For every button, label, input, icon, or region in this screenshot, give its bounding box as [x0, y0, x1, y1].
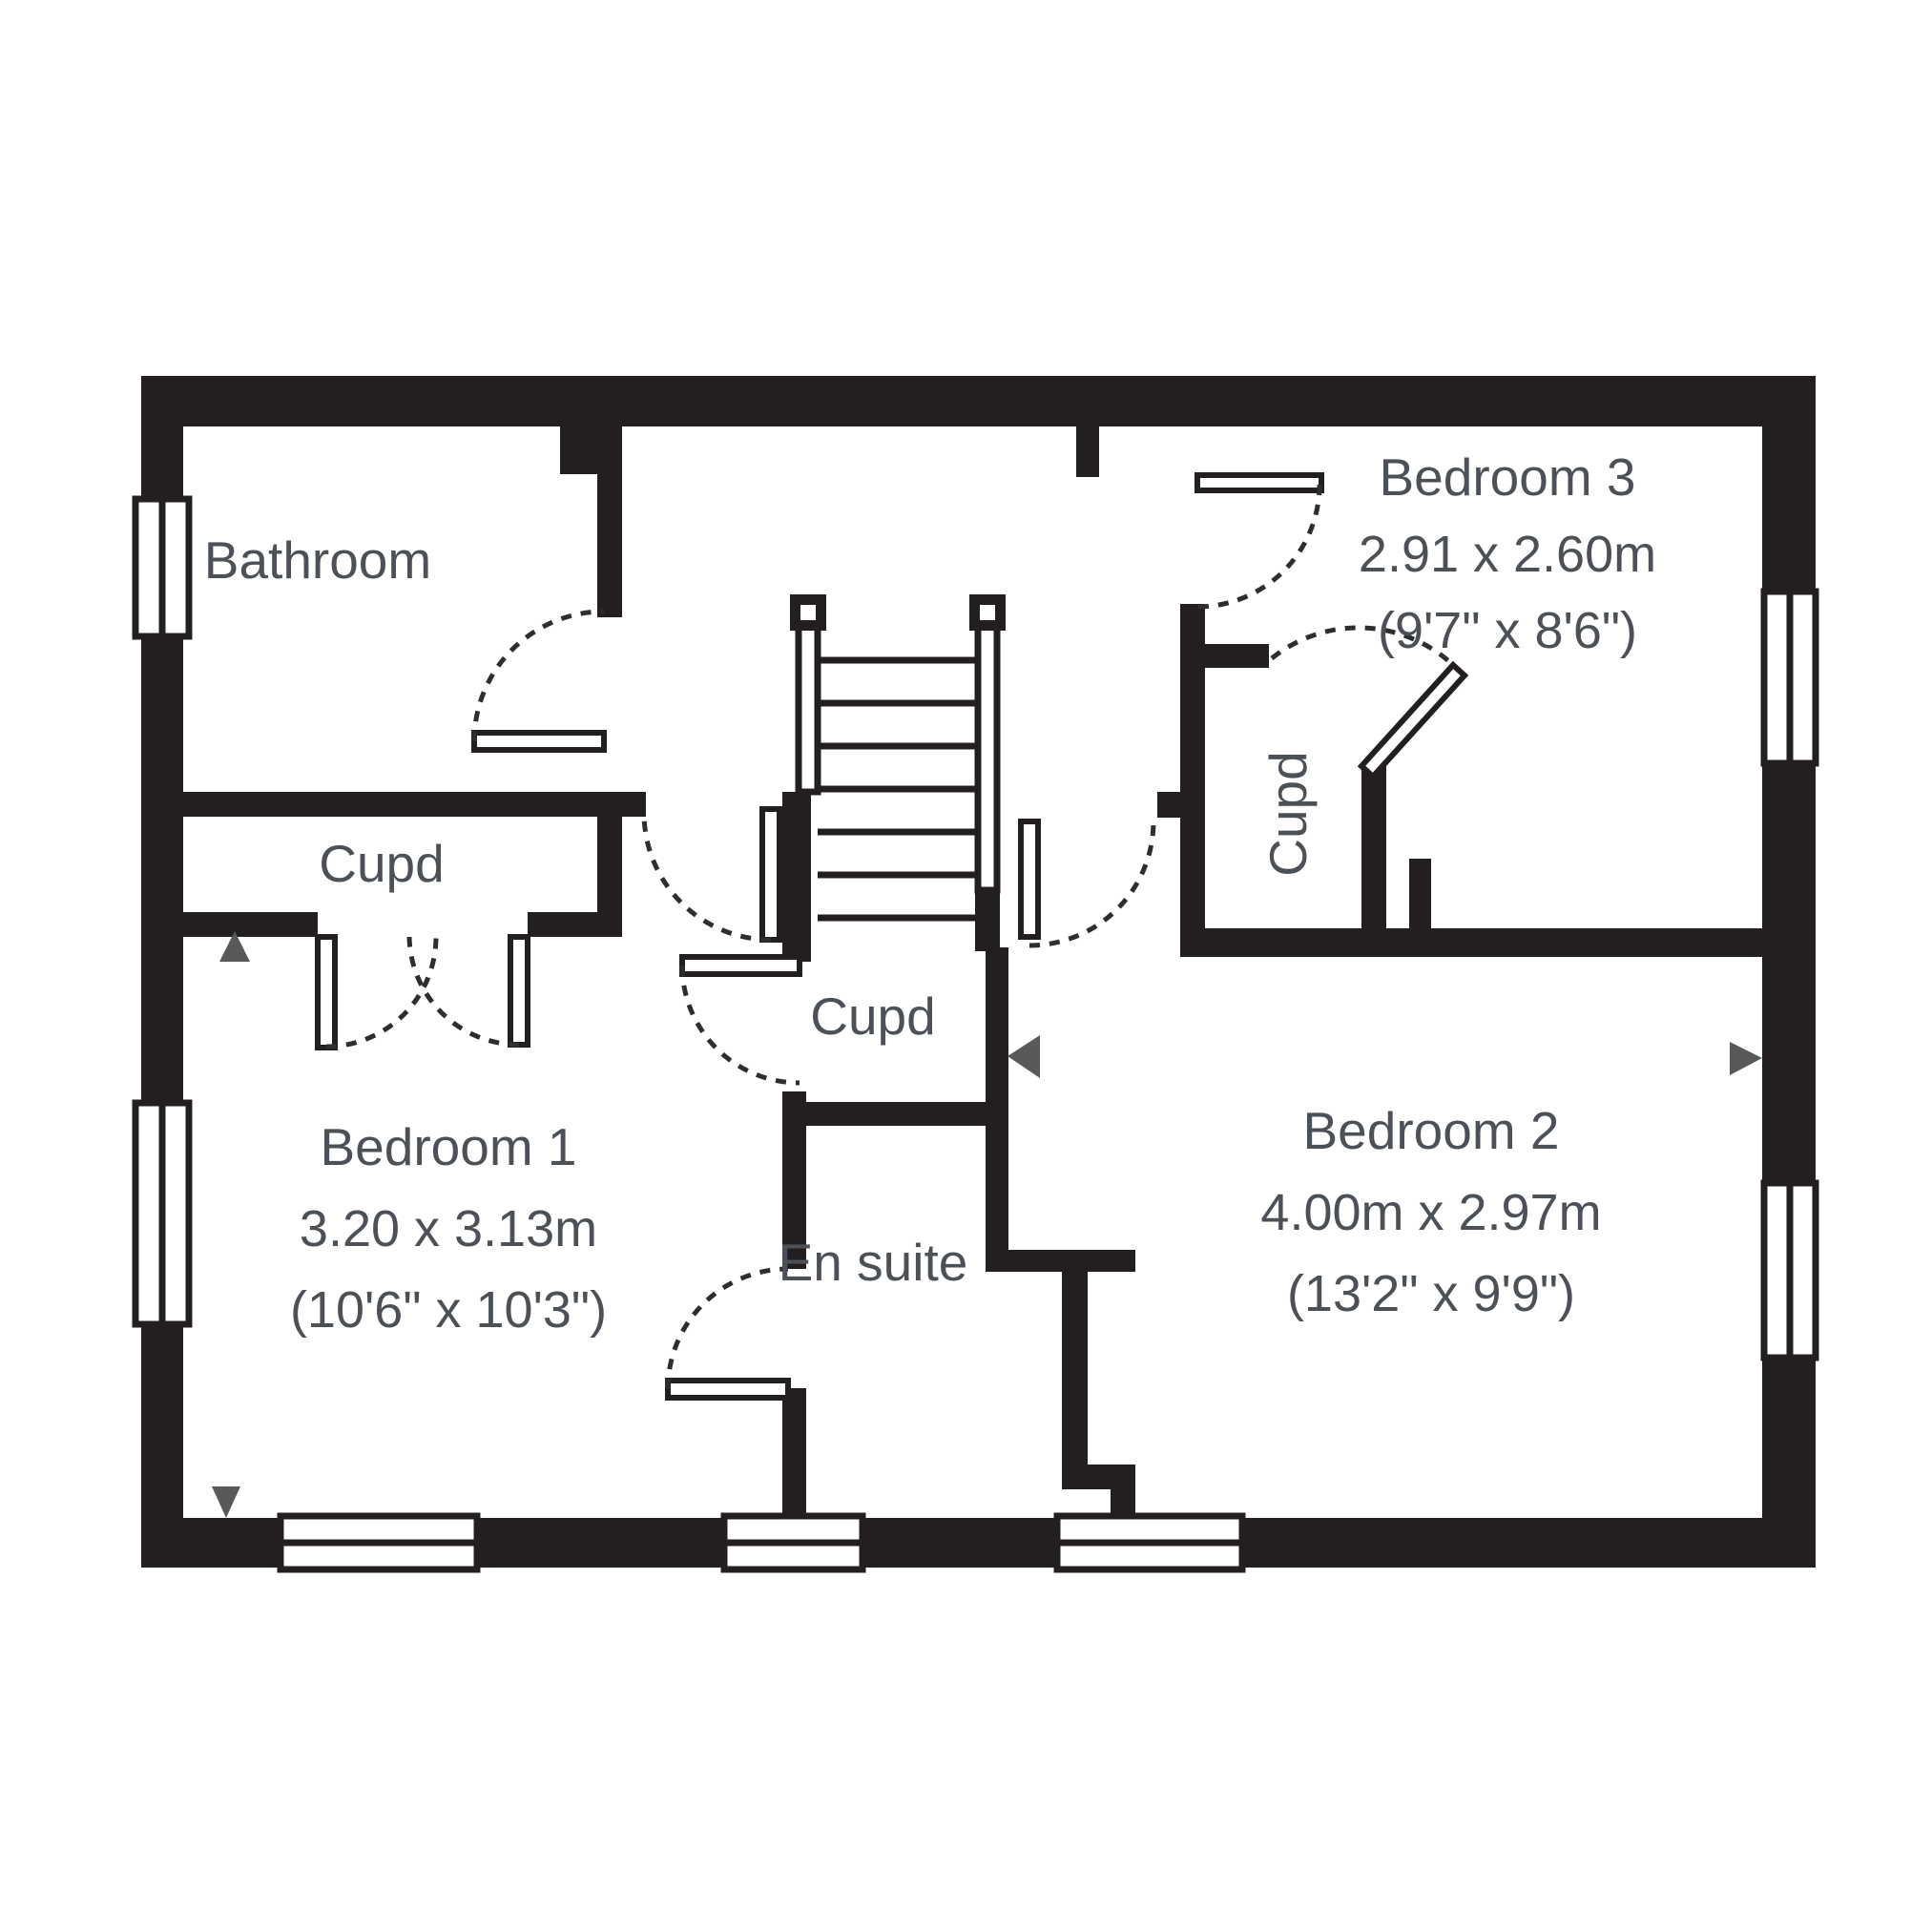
stairs-newel-left-cap: [800, 605, 816, 620]
door-arc-midcupd: [682, 966, 800, 1083]
door-leaf-bedroom2: [1021, 821, 1038, 937]
room-labels: Bathroom Cupd Cupd Cupd En suite Bedroom…: [204, 447, 1656, 1339]
wall-bedroom3-door-stub: [1076, 426, 1099, 477]
bedroom3-dim-imperial: (9'7" x 8'6"): [1378, 602, 1637, 659]
window-bedroom1-left: [135, 1103, 189, 1324]
wall-outer-right: [1762, 376, 1816, 1568]
bedroom2-dim-imperial: (13'2" x 9'9"): [1287, 1265, 1575, 1322]
bedroom2-name: Bedroom 2: [1302, 1101, 1559, 1160]
wall-ensuite-step: [986, 1250, 1135, 1272]
floor-plan-page: Bathroom Cupd Cupd Cupd En suite Bedroom…: [0, 0, 1932, 1932]
wall-rightcupd-stub: [1205, 644, 1269, 668]
wall-midcupd-left-lower: [782, 1388, 806, 1518]
window-ensuite-bottom: [724, 1516, 862, 1569]
wall-leftcupd-bottom-left: [141, 912, 318, 937]
stairs-left-rail: [799, 603, 818, 792]
interior-walls: [141, 426, 1762, 1518]
window-bathroom-left: [135, 499, 189, 636]
wall-stairs-left-lower: [782, 792, 811, 962]
wall-bedroom2-jog-v: [1111, 1465, 1135, 1518]
door-arc-bedroom2: [1029, 821, 1153, 945]
stairs-newel-right-cap: [980, 605, 995, 620]
bedroom1-dim-imperial: (10'6" x 10'3"): [290, 1281, 607, 1339]
bedroom3-name: Bedroom 3: [1379, 447, 1635, 507]
window-bedroom2-bottom: [1057, 1516, 1242, 1569]
staircase: [790, 594, 1006, 951]
door-arc-bedroom3: [1197, 485, 1319, 607]
wall-bedroom2-lowerleft: [1062, 1272, 1088, 1465]
floor-plan-drawing: Bathroom Cupd Cupd Cupd En suite Bedroom…: [0, 0, 1932, 1932]
door-arc-bedroom1: [644, 813, 771, 940]
stairs-treads: [818, 660, 978, 918]
door-arc-leftcupd-b: [409, 937, 519, 1045]
door-leaf-leftcupd-a: [318, 937, 335, 1048]
window-bedroom3-right: [1764, 592, 1816, 763]
door-leaf-ensuite: [668, 1381, 788, 1398]
wall-bedroom2-top: [1180, 928, 1762, 957]
door-leaf-leftcupd-b: [510, 937, 528, 1045]
label-cupd-middle: Cupd: [810, 987, 935, 1046]
arrow-left-icon: [1008, 1035, 1040, 1078]
bedroom1-dim-metric: 3.20 x 3.13m: [300, 1200, 597, 1257]
stairs-right-rail-solid: [975, 890, 1000, 951]
wall-outer-top: [141, 376, 1813, 426]
label-bedroom1: Bedroom 1 3.20 x 3.13m (10'6" x 10'3"): [290, 1117, 607, 1339]
label-cupd-left: Cupd: [319, 834, 444, 893]
bedroom3-dim-metric: 2.91 x 2.60m: [1359, 526, 1656, 583]
label-bathroom: Bathroom: [204, 530, 431, 590]
door-leaf-rightcupd-diagonal: [1361, 665, 1465, 777]
wall-bathroom-bottom: [141, 792, 646, 817]
window-bedroom1-bottom: [280, 1516, 477, 1569]
wall-ensuite-top: [806, 1102, 1008, 1126]
wall-bedroom2-door-nub: [1157, 792, 1180, 818]
wall-ensuite-right: [986, 947, 1008, 1250]
door-arc-ensuite: [668, 1269, 788, 1389]
wall-leftcupd-bottom-right: [528, 912, 622, 937]
stairs-right-rail: [978, 603, 997, 890]
label-cupd-right: Cupd: [1258, 751, 1318, 876]
door-leaf-bedroom1: [762, 809, 779, 940]
label-ensuite: En suite: [779, 1233, 968, 1292]
door-leaf-midcupd: [682, 957, 800, 974]
wall-bedroom3-bedroom2-stub: [1409, 859, 1431, 928]
door-leaf-bathroom: [474, 733, 604, 750]
wall-bathroom-right: [597, 426, 622, 617]
bedroom2-dim-metric: 4.00m x 2.97m: [1260, 1184, 1601, 1241]
bedroom1-name: Bedroom 1: [320, 1117, 576, 1176]
label-bedroom2: Bedroom 2 4.00m x 2.97m (13'2" x 9'9"): [1260, 1101, 1601, 1322]
arrow-down-icon: [212, 1486, 240, 1518]
arrow-right-icon: [1730, 1042, 1762, 1075]
label-bedroom3: Bedroom 3 2.91 x 2.60m (9'7" x 8'6"): [1359, 447, 1656, 659]
door-arc-bathroom: [474, 612, 604, 741]
door-arc-leftcupd-a: [326, 937, 436, 1047]
window-bedroom2-right: [1764, 1183, 1816, 1358]
wall-bedroom3-left: [1180, 604, 1205, 957]
door-leaf-bedroom3: [1197, 475, 1321, 490]
